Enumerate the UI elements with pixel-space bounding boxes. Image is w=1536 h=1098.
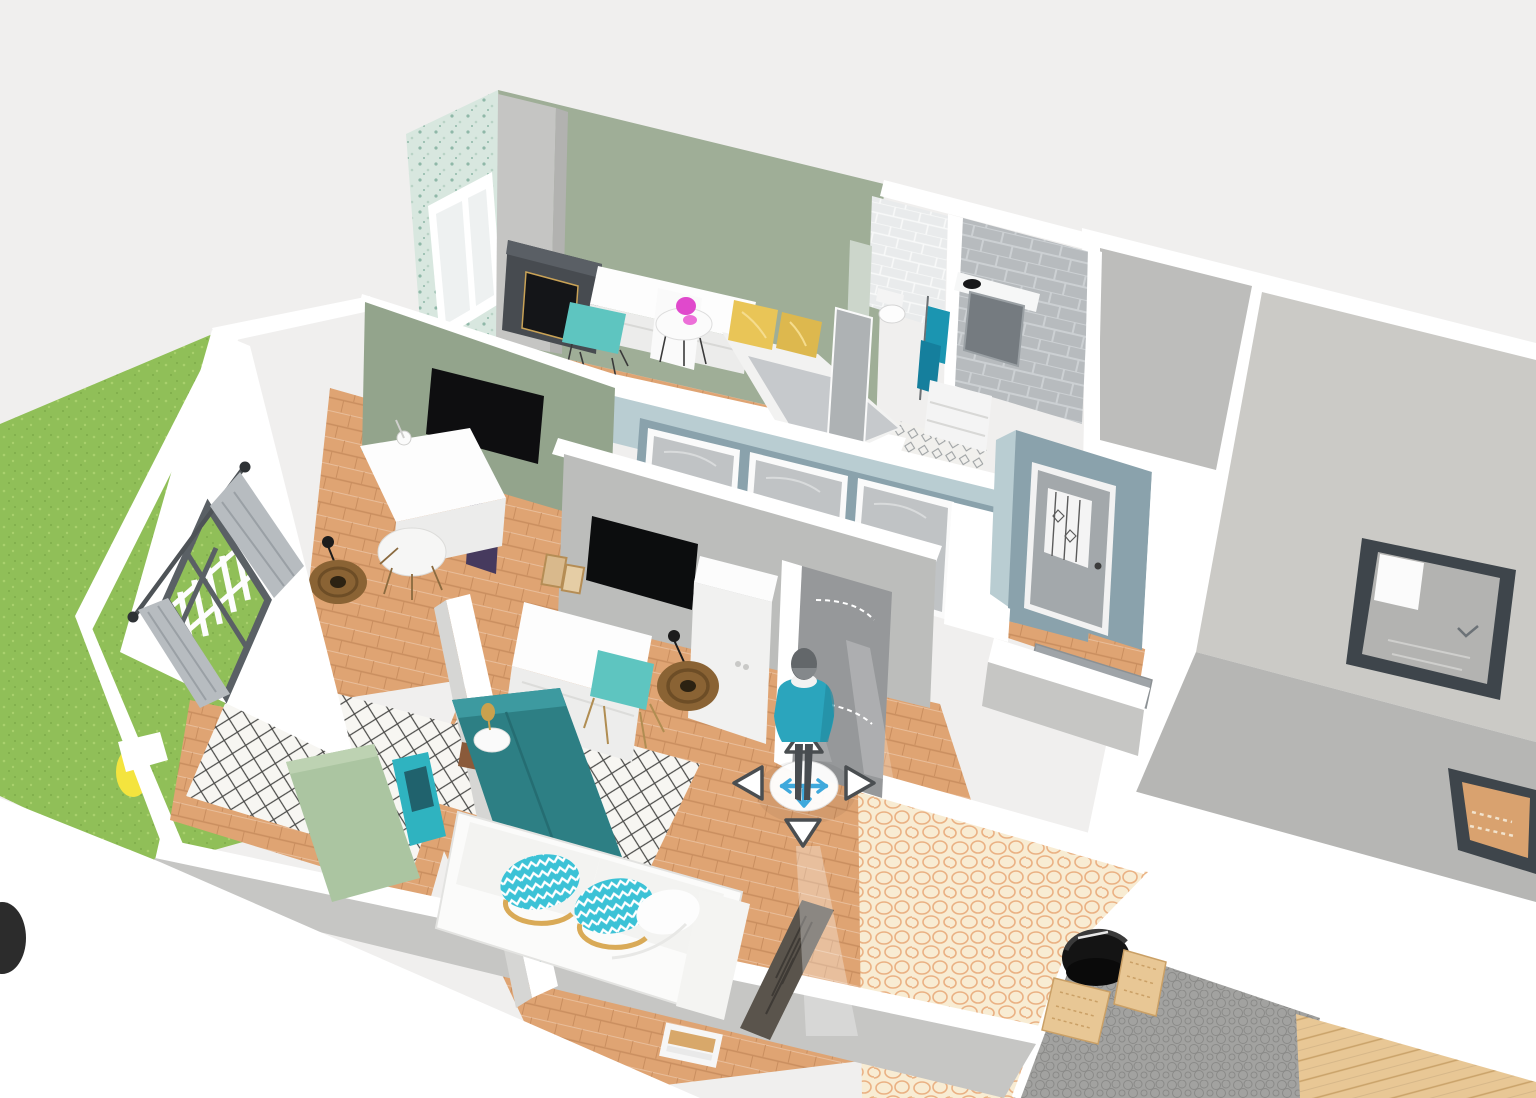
- app-window: [0, 0, 1536, 1098]
- pink-lamp[interactable]: [676, 297, 696, 315]
- pillow-through-skylight: [1374, 554, 1424, 610]
- door-handle: [1095, 563, 1102, 570]
- crate-seat-1[interactable]: [1114, 950, 1166, 1016]
- open-gray-door[interactable]: [828, 308, 872, 446]
- front-door[interactable]: [1024, 462, 1116, 636]
- white-wardrobe[interactable]: [688, 556, 778, 744]
- floorplan-3d-viewport[interactable]: [0, 0, 1536, 1098]
- basin: [963, 279, 981, 289]
